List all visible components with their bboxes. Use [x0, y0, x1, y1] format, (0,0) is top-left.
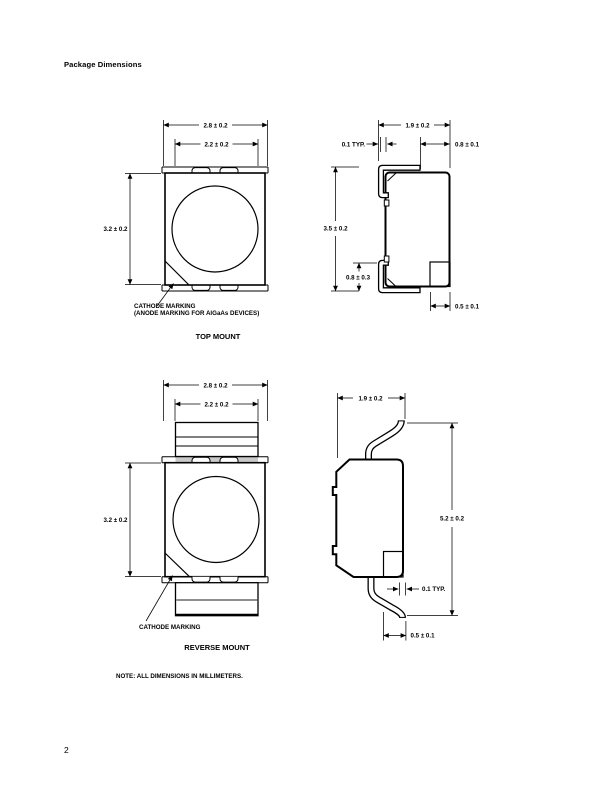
package-dimension-drawings: 2.8 ± 0.2 2.2 ± 0.2 3.2 ± 0.2	[0, 0, 612, 792]
rm-cathode-marking-label: CATHODE MARKING	[139, 624, 200, 631]
tm-cathode-line1: CATHODE MARKING	[134, 303, 259, 310]
dimensions-note: NOTE: ALL DIMENSIONS IN MILLIMETERS.	[116, 673, 243, 680]
rmf-upper-lead-block	[176, 423, 259, 457]
tmf-package-body	[165, 173, 265, 285]
rmf-outer-width-label: 2.8 ± 0.2	[203, 382, 228, 389]
reverse-mount-side-view: 1.9 ± 0.2 5.2 ± 0.2	[333, 393, 465, 641]
tmf-inner-width-label: 2.2 ± 0.2	[204, 141, 229, 148]
rms-lead-thickness-label: 0.1 TYP.	[422, 586, 446, 593]
tmf-height-label: 3.2 ± 0.2	[103, 226, 128, 233]
page-number: 2	[64, 745, 69, 755]
tms-height-label: 3.5 ± 0.2	[323, 226, 348, 233]
rmf-inner-width-label: 2.2 ± 0.2	[204, 401, 229, 408]
rms-package-body	[333, 460, 403, 578]
rmf-cathode-arrow	[146, 576, 173, 622]
rmf-height-label: 3.2 ± 0.2	[103, 517, 128, 524]
tms-lead-top-width-label: 0.8 ± 0.1	[455, 141, 480, 148]
reverse-mount-caption: REVERSE MOUNT	[139, 643, 295, 652]
reverse-mount-front-view: 2.8 ± 0.2 2.2 ± 0.2 3.2 ± 0.2	[103, 380, 268, 621]
tms-lead-foot-width-label: 0.5 ± 0.1	[455, 303, 480, 310]
top-mount-caption: TOP MOUNT	[140, 332, 296, 341]
top-mount-side-view: 1.9 ± 0.2 0.1 TYP. 0.8 ± 0.1 3.5 ± 0.2 0…	[323, 120, 479, 311]
top-mount-front-view: 2.8 ± 0.2 2.2 ± 0.2 3.2 ± 0.2	[103, 120, 268, 306]
datasheet-page: Package Dimensions 2.8 ± 0.2 2.2 ± 0.2	[0, 0, 612, 792]
tms-package-body	[386, 173, 450, 287]
rmf-package-body	[165, 463, 265, 577]
tms-width-label: 1.9 ± 0.2	[405, 122, 430, 129]
rms-width-label: 1.9 ± 0.2	[358, 395, 383, 402]
tms-lead-height-label: 0.8 ± 0.3	[346, 275, 371, 282]
rms-top-lead	[369, 421, 405, 461]
tm-cathode-line2: (ANODE MARKING FOR AlGaAs DEVICES)	[134, 310, 259, 317]
rms-lead-foot-width-label: 0.5 ± 0.1	[411, 633, 436, 640]
tms-lead-thickness-label: 0.1 TYP.	[342, 141, 366, 148]
tm-cathode-marking-label: CATHODE MARKING (ANODE MARKING FOR AlGaA…	[134, 303, 259, 317]
rms-height-label: 5.2 ± 0.2	[440, 516, 465, 523]
tmf-outer-width-label: 2.8 ± 0.2	[203, 122, 228, 129]
rms-bottom-lead	[371, 576, 406, 617]
